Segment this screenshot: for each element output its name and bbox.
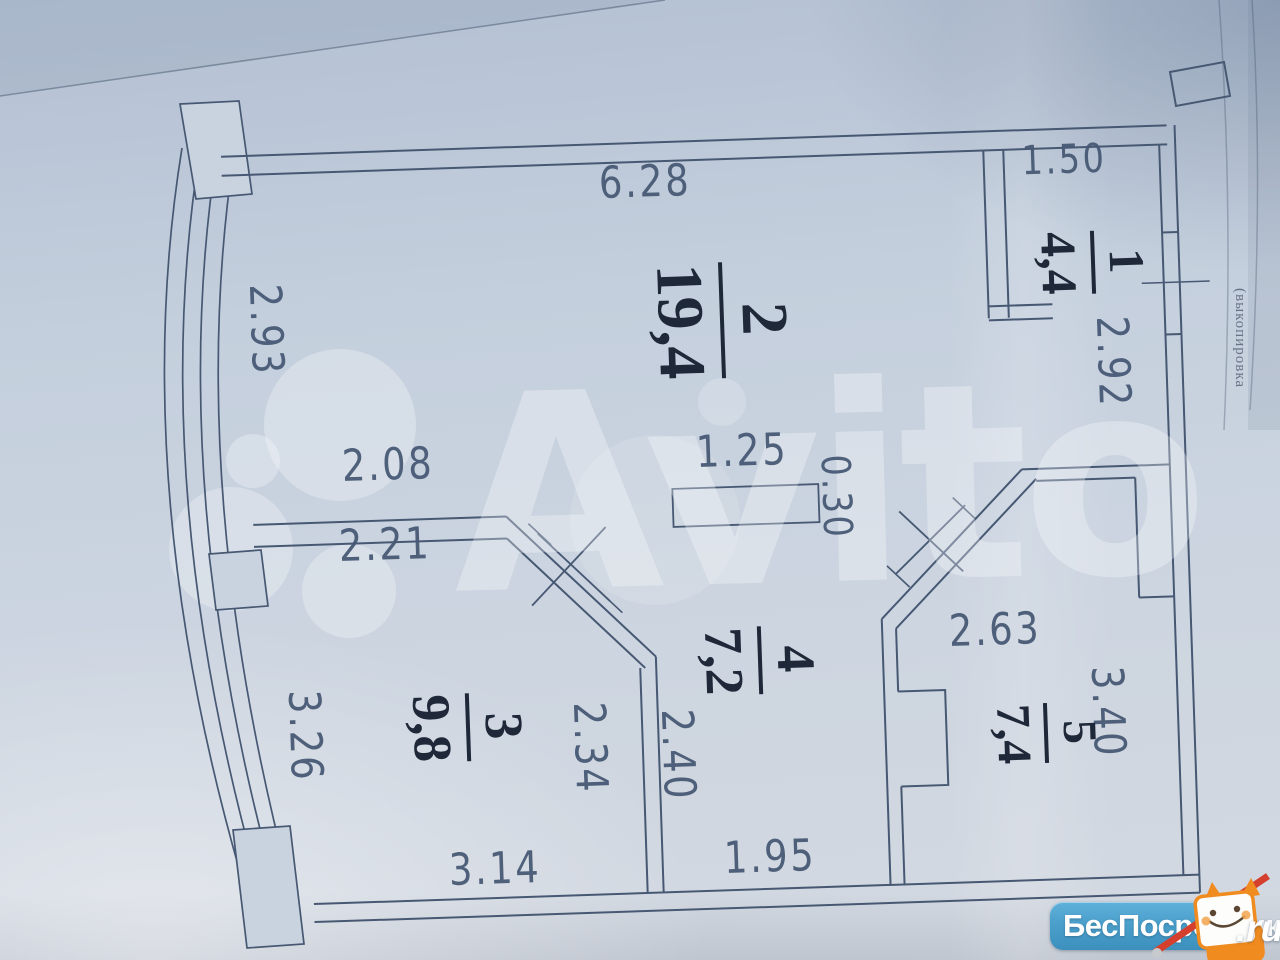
room-label: 3 9,8 <box>404 691 532 763</box>
dimension-label: 1.50 <box>1021 136 1107 185</box>
dimension-label: 2.21 <box>338 518 432 572</box>
edge-note: (выкопировка <box>1231 288 1248 488</box>
room-area: 9,8 <box>404 693 467 763</box>
page-curl <box>1219 0 1280 430</box>
dimension-label: 2.93 <box>239 283 293 377</box>
dimension-label: 2.92 <box>1086 315 1140 409</box>
room-number: 2 <box>718 260 799 378</box>
dimension-label: 2.34 <box>563 701 617 795</box>
room-label: 2 19,4 <box>645 260 799 381</box>
dimension-label: 0.30 <box>812 454 861 540</box>
dimension-label: 3.26 <box>278 689 332 783</box>
apartment-floorplan-photo: Avito (выкопировка 6.28 1.50 2.92 2.93 2… <box>0 0 1280 960</box>
room-number: 5 <box>1043 701 1104 763</box>
room-number: 3 <box>465 691 532 761</box>
paper-edge <box>0 0 665 96</box>
besposrednika-logo: БесПосредника <box>1050 902 1246 950</box>
dimension-label: 3.14 <box>448 842 542 896</box>
room-area: 7,2 <box>696 626 759 696</box>
wall-cap <box>1170 62 1230 106</box>
dimension-label: 1.95 <box>723 830 817 884</box>
room-number: 4 <box>757 624 824 694</box>
logo-tld: .ru <box>1236 908 1280 950</box>
room-label: 1 4,4 <box>1033 229 1153 296</box>
room-label: 4 7,2 <box>696 624 824 696</box>
room-label: 5 7,4 <box>988 701 1104 765</box>
dimension-label: 2.08 <box>341 438 435 492</box>
dimension-label: 1.25 <box>695 424 789 478</box>
dimension-label: 6.28 <box>598 155 692 209</box>
room-area: 4,4 <box>1033 231 1092 295</box>
dimension-label: 2.63 <box>948 603 1042 657</box>
room-area: 7,4 <box>988 703 1045 765</box>
dimension-label: 2.40 <box>651 708 705 802</box>
room-number: 1 <box>1090 229 1153 294</box>
room-area: 19,4 <box>645 262 722 380</box>
